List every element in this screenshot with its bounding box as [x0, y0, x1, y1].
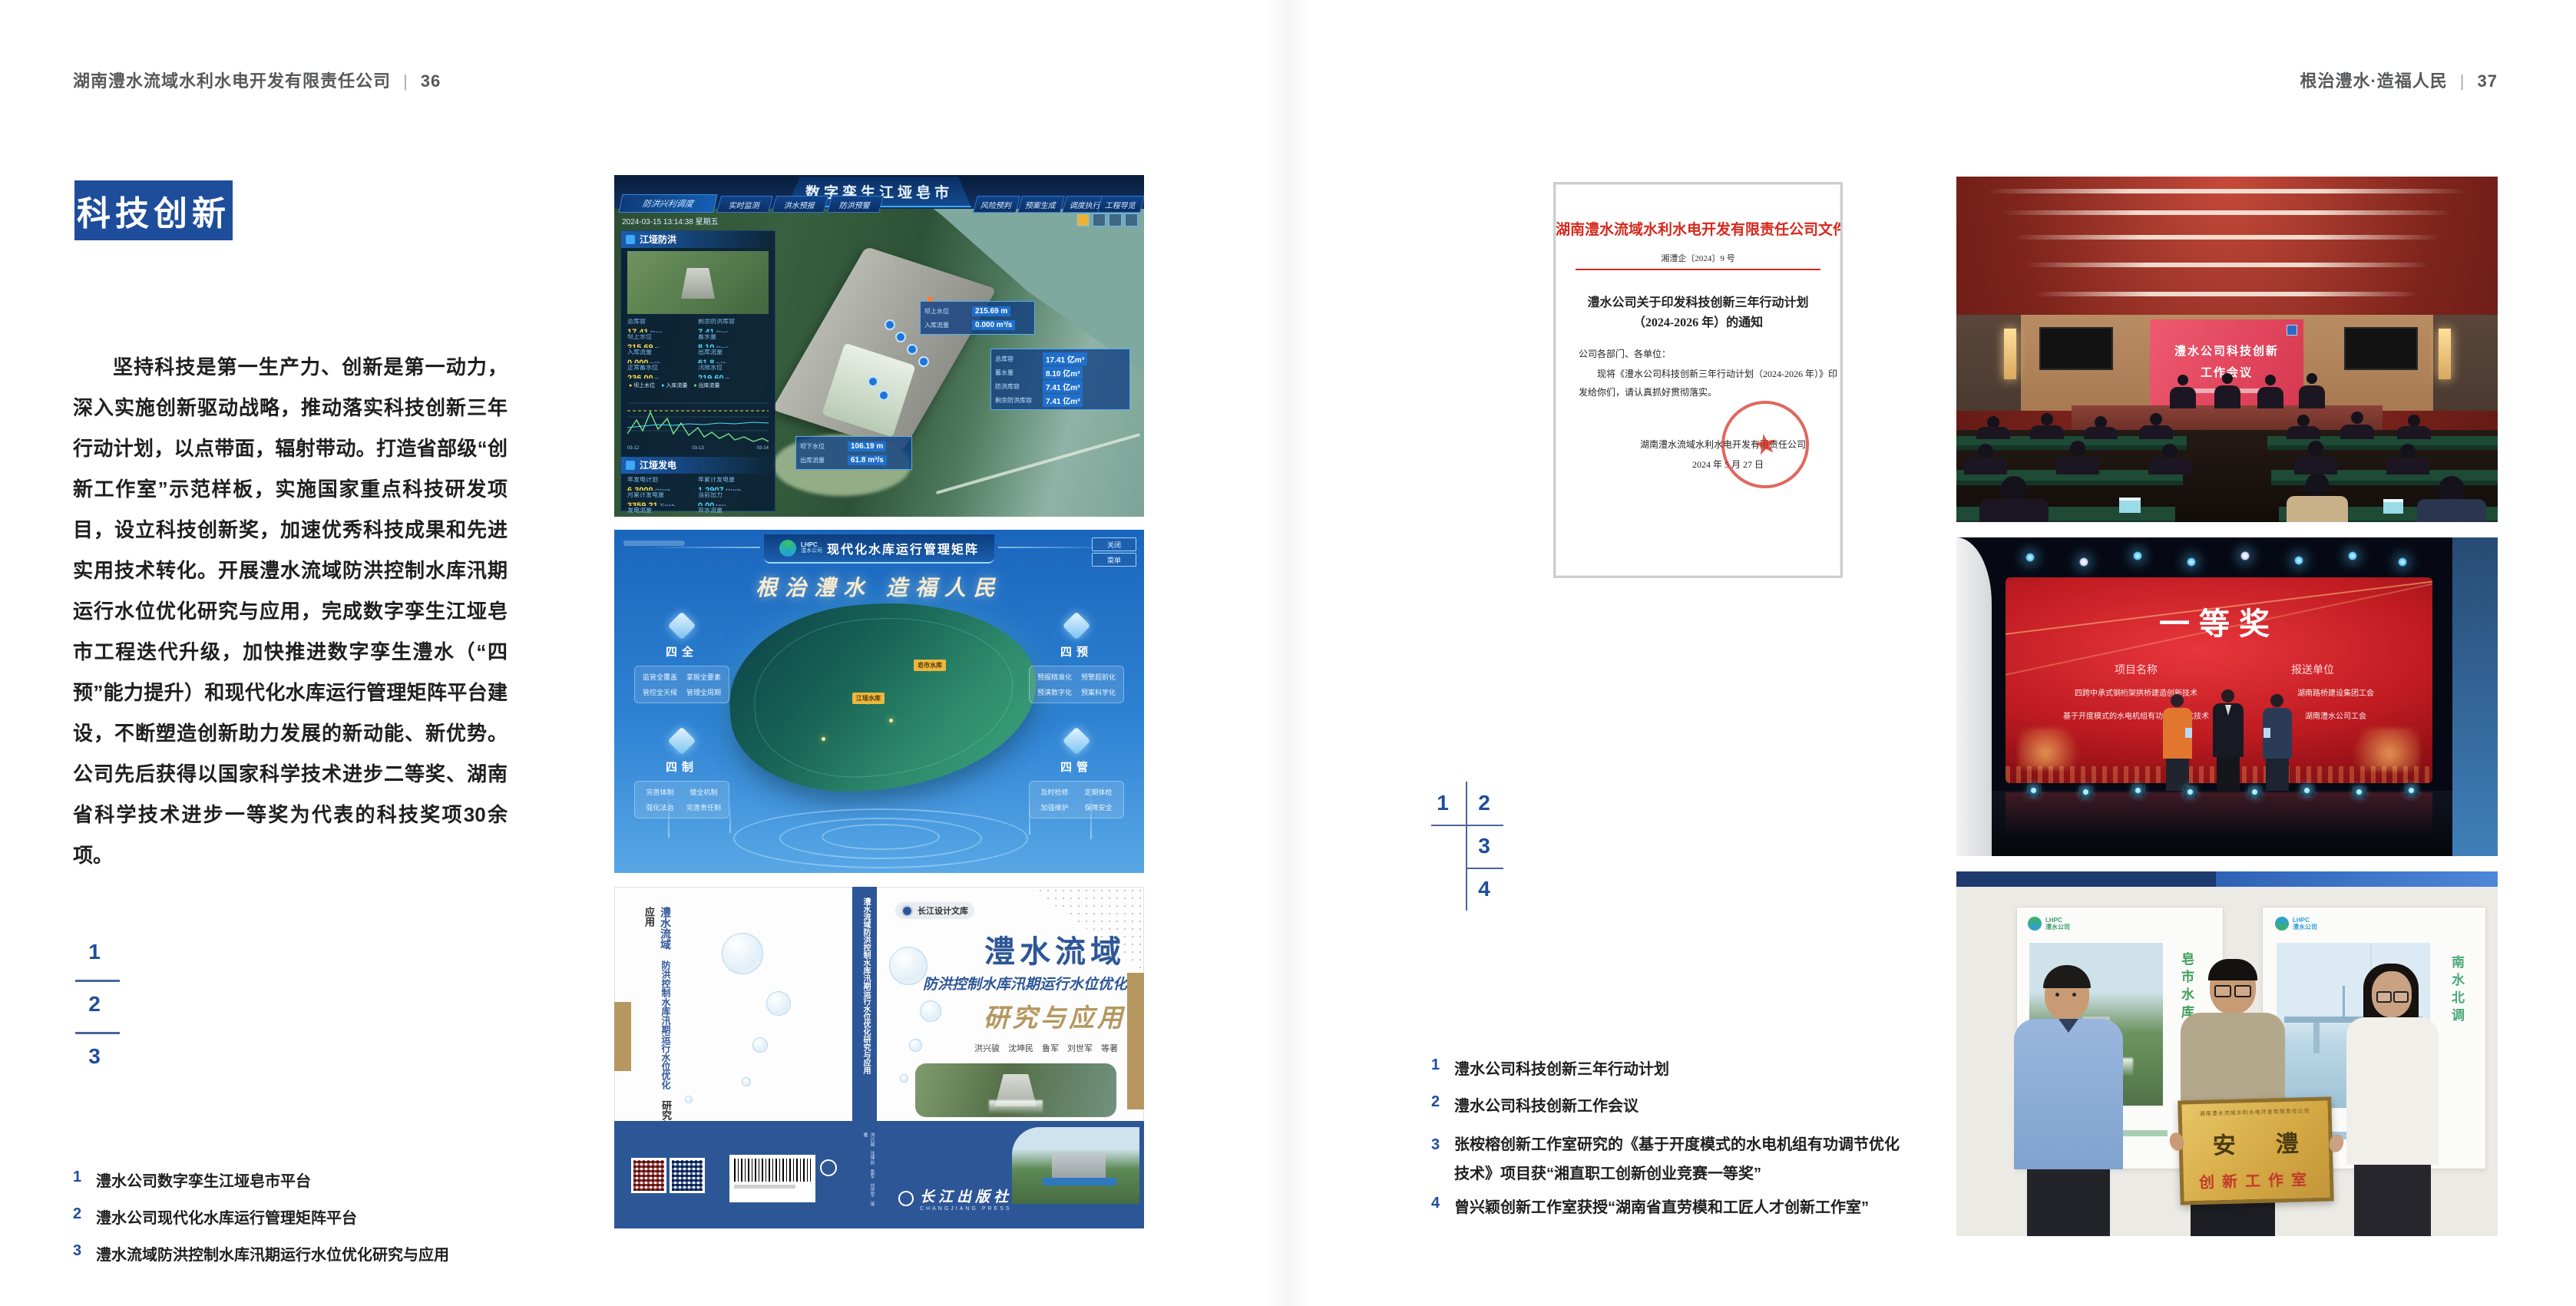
legend-item: ● 坝上水位	[629, 382, 655, 389]
stage-glow	[2018, 728, 2087, 769]
panel-items: 及时检修定期体检 加强维护保障安全	[1029, 781, 1124, 818]
award-project-2: 基于开度模式的水电机组有功调节优化技术	[2029, 709, 2244, 721]
gate-marker[interactable]	[907, 344, 918, 355]
floor-reflection	[2006, 792, 2432, 835]
page-number-37: 37	[2478, 71, 2498, 91]
figure-workshop-photo: LHPC澧水公司 皂市水库 LHPC澧水公司 南水北调	[1956, 871, 2498, 1236]
poster-logo: LHPC澧水公司	[2028, 917, 2070, 931]
band-photo-building	[1043, 1178, 1116, 1185]
presenter-suit	[2212, 689, 2244, 794]
spine-title: 澧水流域防洪控制水库汛期运行水位优化研究与应用	[860, 898, 871, 1128]
stat: 出库流量61.8m³/s	[698, 349, 769, 363]
header-divider: |	[391, 71, 421, 91]
caption-text: 澧水公司科技创新工作会议	[1454, 1093, 1639, 1116]
changjiang-design-logo	[901, 905, 913, 917]
caption-number: 2	[1431, 1093, 1454, 1111]
tab-flood-forecast[interactable]: 洪水预报	[772, 196, 828, 213]
figure-matrix-platform: LHPC 澧水公司 现代化水库运行管理矩阵 关闭 菜单 根治澧水 造福人民 皂市…	[614, 530, 1144, 873]
audience-silhouette	[1964, 444, 2007, 474]
tissue-box	[2119, 498, 2141, 513]
company-name: 湖南澧水流域水利水电开发有限责任公司	[73, 71, 391, 91]
light-pillar	[668, 795, 670, 838]
layers-icon[interactable]	[1093, 213, 1106, 226]
audience-silhouette	[2139, 413, 2173, 439]
dais-person	[2299, 373, 2325, 408]
legend-item: ● 入库流量	[661, 382, 687, 389]
trophy	[2264, 728, 2270, 738]
matrix-datetime-bar	[623, 541, 685, 546]
back-cover-title: 澧水流域 防洪控制水库汛期运行水位优化 研究与应用	[640, 907, 674, 1137]
right-caption-1: 1 澧水公司科技创新三年行动计划	[1431, 1056, 1907, 1079]
ceiling-light	[1987, 189, 2467, 193]
index-grid-vline	[1466, 782, 1467, 911]
tab-realtime-monitor[interactable]: 实时监测	[716, 196, 773, 213]
callout-row: 总库容17.41 亿m³	[995, 352, 1126, 365]
audience-silhouette	[2056, 441, 2099, 474]
polo-shirt	[2014, 1019, 2123, 1169]
water-bubble	[685, 1096, 693, 1103]
figure-book-cover: 澧水流域 防洪控制水库汛期运行水位优化 研究与应用 澧水流域防洪控制水库汛期运行…	[614, 887, 1144, 1228]
back-cover-band	[614, 1121, 852, 1228]
qr-code	[631, 1158, 666, 1193]
front-tan-bar	[1127, 973, 1144, 1109]
chart-x-ticks: 03-1203-1303-14	[627, 446, 769, 451]
maintenance-icon	[1063, 727, 1091, 755]
caption-text: 澧水公司科技创新三年行动计划	[1454, 1056, 1669, 1079]
basin-map: 皂市水库 江垭水库	[729, 603, 1037, 789]
figure-digital-twin-dashboard: 数字孪生江垭皂市 防洪兴利调度 实时监测 洪水预报 防洪预警 风险预判 预案生成…	[614, 175, 1144, 517]
top-banner-left	[1956, 871, 2216, 887]
book-title-sub: 防洪控制水库汛期运行水位优化	[906, 973, 1127, 994]
right-index-2: 2	[1471, 791, 1497, 815]
water-level-chart	[627, 389, 769, 446]
audience-silhouette	[2397, 415, 2431, 439]
tab-risk[interactable]: 风险预判	[973, 196, 1020, 213]
stat: 发电流量0.00m³/s	[627, 508, 698, 517]
figure-meeting-photo: 澧水公司科技创新 工作会议	[1956, 177, 2498, 522]
book-spine: 澧水流域防洪控制水库汛期运行水位优化研究与应用 洪兴骏 沈坤民 鲁军 刘世军 等…	[852, 887, 877, 1228]
glasses	[2376, 991, 2392, 1003]
page-number-36: 36	[421, 71, 441, 91]
callout-upstream: 坝上水位215.69 m 入库流量0.000 m³/s	[920, 301, 1035, 335]
award-col2-header: 报送单位	[2236, 662, 2389, 677]
doc-salutation: 公司各部门、各单位：	[1579, 347, 1671, 360]
locate-icon[interactable]	[1109, 213, 1122, 226]
lhpc-logo-icon	[779, 540, 796, 557]
panel-name: 四制	[634, 759, 729, 775]
right-caption-3: 3 张桉榕创新工作室研究的《基于开度模式的水电机组有功调节优化技术》项目获“湘直…	[1431, 1130, 1907, 1189]
tab-flood-warning[interactable]: 防洪预警	[827, 196, 884, 213]
caption-text: 澧水公司现代化水库运行管理矩阵平台	[96, 1205, 357, 1228]
audience-silhouette	[2287, 415, 2320, 439]
access-road	[936, 433, 1140, 494]
bridge-pier	[2313, 1023, 2320, 1053]
series-name: 长江设计文库	[918, 904, 968, 917]
right-caption-4: 4 曾兴颖创新工作室获授“湖南省直劳模和工匠人才创新工作室”	[1431, 1195, 1923, 1217]
water-bubble	[909, 1039, 922, 1052]
flood-stats: 总库容17.41亿m³ 剩余防洪库容7.41亿m³ 坝上水位215.69m 蓄水…	[627, 319, 769, 379]
stat: 年累计发电量1.2907亿kWh	[698, 477, 769, 491]
panel-items: 监管全覆盖掌握全要素 管控全天候管理全周期	[634, 666, 729, 703]
wall-lamp-right	[2439, 329, 2451, 379]
caption-number: 4	[1431, 1195, 1454, 1212]
audience-silhouette	[2148, 444, 2191, 474]
wall-lamp-left	[2004, 329, 2016, 379]
poster-logo: LHPC澧水公司	[2275, 917, 2317, 931]
stat: 弃水流量0.00m³/s	[698, 508, 769, 517]
water-bubble	[722, 933, 763, 974]
stat: 剩余防洪库容7.41亿m³	[698, 319, 769, 332]
doc-body-line2: 发给你们，请认真抓好贯彻落实。	[1579, 385, 1717, 398]
gate-marker[interactable]	[918, 356, 929, 367]
qr-code	[670, 1158, 705, 1193]
spread-gutter	[1263, 0, 1314, 1306]
panel-items: 完善体制健全机制 强化法治完善责任制	[634, 781, 729, 818]
chart-legend: ● 坝上水位 ● 入库流量 ● 出库流量	[629, 382, 720, 389]
header-divider-right: |	[2448, 71, 2478, 91]
institution-icon	[668, 727, 696, 755]
panel-siquan: 四全 监管全覆盖掌握全要素 管控全天候管理全周期	[634, 616, 729, 703]
series-brand: 长江设计文库	[895, 902, 974, 919]
audience-silhouette	[1979, 476, 2049, 522]
left-index-3: 3	[81, 1044, 107, 1069]
lhpc-logo-icon	[2275, 917, 2289, 931]
matrix-header: LHPC 澧水公司 现代化水库运行管理矩阵	[764, 534, 994, 564]
right-caption-2: 2 澧水公司科技创新工作会议	[1431, 1093, 1907, 1116]
dam-thumbnail	[627, 251, 769, 314]
index-grid-hline	[1466, 868, 1503, 869]
dashboard-timestamp: 2024-03-15 13:14:38 星期五	[622, 215, 719, 226]
dashboard-toolbar	[1073, 213, 1138, 226]
stat: 年发电计划6.3000亿kWh	[627, 477, 698, 491]
caption-text: 张桉榕创新工作室研究的《基于开度模式的水电机组有功调节优化技术》项目获“湘直职工…	[1454, 1130, 1903, 1189]
photo-spray	[989, 1100, 1043, 1114]
caption-text: 澧水流域防洪控制水库汛期运行水位优化研究与应用	[96, 1242, 449, 1265]
band-photo-dam	[1052, 1153, 1106, 1179]
index-rule	[75, 980, 120, 982]
callout-reservoir: 总库容17.41 亿m³ 蓄水量8.10 亿m³ 防洪库容7.41 亿m³ 剩余…	[990, 349, 1130, 410]
doc-red-rule	[1576, 269, 1820, 270]
glasses	[2234, 985, 2251, 997]
plaque-name: 安澧	[2182, 1124, 2329, 1162]
callout-row: 蓄水量8.10 亿m³	[995, 365, 1126, 379]
dais-person	[2214, 373, 2240, 408]
stat: 入库流量0.000m³/s	[627, 349, 698, 363]
stat: 坝上水位215.69m	[627, 334, 698, 348]
section-badge: 科技创新	[74, 180, 233, 240]
tissue-box	[2383, 499, 2403, 514]
screen-logo	[2287, 325, 2297, 336]
plaque-org: 湖南澧水流域水利水电开发有限责任公司	[2182, 1107, 2328, 1119]
glasses	[2393, 991, 2409, 1003]
dais-person	[2257, 375, 2283, 408]
figure-official-document: 湖南澧水流域水利水电开发有限责任公司文件 湘澧企〔2024〕9 号 澧水公司关于…	[1553, 182, 1843, 578]
stage-side-panel-left	[1956, 537, 1992, 856]
worker-marker	[928, 296, 933, 302]
poster-title-vertical: 南水北调	[2447, 955, 2466, 1070]
header-wing	[645, 547, 760, 548]
tab-project-tour[interactable]: 工程导览	[1097, 196, 1144, 213]
light-pillar	[729, 802, 731, 833]
panel-siyu: 四预 预报精准化预警超前化 预演数字化预案科学化	[1029, 616, 1124, 703]
left-caption-2: 2 澧水公司现代化水库运行管理矩阵平台	[73, 1205, 564, 1228]
plaque-subtitle: 创新工作室	[2184, 1167, 2330, 1193]
audience-silhouette	[2417, 476, 2486, 522]
ceiling-light	[2014, 235, 2440, 240]
intro-paragraph: 坚持科技是第一生产力、创新是第一动力，深入实施创新驱动战略，推动落实科技创新三年…	[73, 347, 508, 876]
gate-marker[interactable]	[878, 390, 889, 401]
trousers	[2027, 1169, 2110, 1236]
caption-text: 曾兴颖创新工作室获授“湖南省直劳模和工匠人才创新工作室”	[1454, 1195, 1869, 1217]
lhpc-logo-text: LHPC 澧水公司	[801, 542, 822, 554]
cover-dam-photo	[915, 1063, 1116, 1117]
audience-silhouette	[1976, 416, 2010, 439]
stat: 月累计发电量3359.21万kWh	[627, 492, 698, 506]
nav-active-label: 防洪兴利调度	[618, 194, 717, 213]
top-banner-right	[2216, 871, 2498, 887]
award-col1-header: 项目名称	[2059, 662, 2213, 677]
publisher-block: 长江出版社 CHANGJIANG PRESS	[898, 1185, 1012, 1212]
doc-title-line1: 澧水公司关于印发科技创新三年行动计划	[1556, 292, 1840, 310]
stage-glow	[2343, 728, 2420, 771]
gate-marker[interactable]	[885, 319, 895, 330]
stat: 汛限水位219.60m	[698, 365, 769, 379]
glasses	[2214, 985, 2231, 997]
audience-silhouette	[2030, 413, 2064, 439]
ceiling-light	[2025, 263, 2429, 267]
publisher-logo	[898, 1191, 914, 1206]
forecast-icon	[1063, 612, 1091, 640]
lhpc-logo-icon	[2028, 917, 2042, 931]
thumb-dam	[681, 268, 715, 299]
audience-silhouette	[2340, 412, 2374, 439]
ceiling-light	[2035, 292, 2419, 296]
front-cover-band: 长江出版社 CHANGJIANG PRESS	[877, 1121, 1144, 1228]
audience-silhouette	[2386, 444, 2429, 474]
band-photo	[1012, 1127, 1139, 1204]
light-pillar	[1090, 792, 1092, 839]
panel-name: 四全	[634, 643, 729, 660]
doc-letterhead: 湖南澧水流域水利水电开发有限责任公司文件	[1556, 218, 1840, 239]
motto: 根治澧水·造福人民	[2300, 71, 2447, 91]
user-icon[interactable]	[1076, 213, 1090, 226]
back-tan-block	[614, 1002, 631, 1071]
water-bubble	[766, 991, 791, 1016]
callout-downstream: 坝下水位106.19 m 出库流量61.8 m³/s	[795, 436, 912, 470]
stat: 正常蓄水位236.00m	[627, 365, 698, 379]
audience-silhouette	[2294, 441, 2337, 474]
callout-row: 防洪库容7.41 亿m³	[995, 379, 1126, 393]
index-rule	[75, 1032, 120, 1034]
caption-text: 澧水公司数字孪生江垭皂市平台	[96, 1169, 311, 1191]
trousers	[2354, 1165, 2431, 1236]
barcode	[729, 1155, 815, 1202]
close-button[interactable]: 关闭	[1092, 537, 1136, 551]
seal-star-icon: ★	[1750, 427, 1780, 463]
right-index-3: 3	[1471, 834, 1497, 858]
menu-button[interactable]: 菜单	[1092, 553, 1136, 567]
flood-panel-title: 江垭防洪	[621, 231, 775, 248]
screen-title-line1: 澧水公司科技创新	[2150, 342, 2303, 359]
workshop-plaque: 湖南澧水流域水利水电开发有限责任公司 安澧 创新工作室	[2178, 1096, 2333, 1205]
power-stats: 年发电计划6.3000亿kWh 年累计发电量1.2907亿kWh 月累计发电量3…	[627, 477, 769, 517]
ceiling-light	[2002, 210, 2452, 215]
stat: 蓄水量8.10亿m³	[698, 334, 769, 348]
callout-row: 坝下水位106.19 m	[800, 439, 908, 453]
right-index-1: 1	[1430, 791, 1456, 815]
audience-silhouette	[2084, 416, 2118, 439]
alert-icon[interactable]	[1125, 213, 1138, 226]
panel-name: 四预	[1029, 643, 1124, 660]
left-index-1: 1	[81, 940, 107, 964]
doc-number: 湘澧企〔2024〕9 号	[1556, 252, 1840, 264]
matrix-title: 现代化水库运行管理矩阵	[827, 539, 979, 557]
panel-name: 四管	[1029, 759, 1124, 775]
gate-marker[interactable]	[868, 376, 878, 387]
power-panel-title: 江垭发电	[621, 457, 775, 474]
award-title: 一等奖	[2006, 599, 2432, 643]
publisher-emblem	[820, 1159, 837, 1176]
caption-number: 3	[73, 1242, 96, 1260]
flood-panel: 江垭防洪 总库容17.41亿m³ 剩余防洪库容7.41亿m³ 坝上水位215.6…	[620, 230, 775, 511]
left-caption-3: 3 澧水流域防洪控制水库汛期运行水位优化研究与应用	[73, 1242, 564, 1265]
trophy	[2185, 728, 2192, 738]
water-bubble	[752, 1037, 768, 1053]
water-bubble	[900, 1074, 908, 1083]
panel-sizhi: 四制 完善体制健全机制 强化法治完善责任制	[634, 731, 729, 818]
panel-items: 预报精准化预警超前化 预演数字化预案科学化	[1029, 666, 1124, 703]
callout-row: 出库流量61.8 m³/s	[800, 453, 908, 467]
left-index-2: 2	[81, 992, 107, 1017]
gate-marker[interactable]	[895, 332, 906, 342]
matrix-slogan: 根治澧水 造福人民	[614, 571, 1144, 602]
stat: 当前出力0.00MW	[698, 492, 769, 506]
stage-side-panel-right	[2452, 537, 2498, 856]
book-title-main: 澧水流域	[921, 927, 1126, 971]
magazine-spread: 湖南澧水流域水利水电开发有限责任公司|36 根治澧水·造福人民|37 科技创新 …	[0, 0, 2576, 1306]
marker-jiangya-reservoir[interactable]: 江垭水库	[852, 693, 885, 704]
award-project-1: 四跨中承式钢桁架拱桥建造创新技术	[2029, 686, 2244, 698]
hair	[2208, 959, 2257, 980]
book-title-tail: 研究与应用	[921, 997, 1126, 1034]
station-dot	[889, 719, 893, 722]
legend-item: ● 出库流量	[693, 382, 719, 389]
publisher-en: CHANGJIANG PRESS	[920, 1206, 1012, 1212]
dais-person	[2170, 375, 2196, 408]
doc-title-line2: （2024-2026 年）的通知	[1556, 312, 1840, 330]
wall-tv-left	[2039, 327, 2113, 370]
white-top	[2346, 1017, 2439, 1165]
left-caption-1: 1 澧水公司数字孪生江垭皂市平台	[73, 1169, 564, 1191]
winner-orange	[2162, 694, 2193, 794]
right-index-4: 4	[1471, 877, 1497, 901]
publisher-name: 长江出版社	[920, 1185, 1012, 1206]
callout-row: 坝上水位215.69 m	[924, 304, 1030, 318]
doc-body-line1: 现将《澧水公司科技创新三年行动计划（2024-2026 年）》印	[1597, 367, 1837, 380]
caption-number: 3	[1431, 1130, 1454, 1159]
person-right	[2344, 964, 2441, 1236]
header-right: 根治澧水·造福人民|37	[2300, 68, 2498, 92]
tab-plan[interactable]: 预案生成	[1017, 196, 1065, 213]
wall-tv-right	[2344, 327, 2418, 370]
marker-zaoshi-reservoir[interactable]: 皂市水库	[914, 660, 946, 671]
light-pillar	[1029, 798, 1030, 835]
index-grid-hline	[1431, 825, 1503, 826]
monitor-icon	[668, 612, 696, 640]
caption-number: 2	[73, 1205, 96, 1223]
header-left: 湖南澧水流域水利水电开发有限责任公司|36	[73, 68, 441, 92]
panel-siguan: 四管 及时检修定期体检 加强维护保障安全	[1029, 731, 1124, 818]
spine-authors: 洪兴骏 沈坤民 鲁军 刘世军 等著	[861, 1132, 875, 1209]
caption-number: 1	[1431, 1056, 1454, 1074]
person-left	[2014, 970, 2123, 1236]
audience-silhouette-tan-coat	[2287, 473, 2348, 522]
official-seal: ★	[1715, 394, 1816, 495]
winner-blue	[2262, 694, 2293, 794]
book-authors: 洪兴骏 沈坤民 鲁军 刘世军 等著	[921, 1042, 1118, 1054]
callout-row: 入库流量0.000 m³/s	[924, 318, 1030, 332]
stat: 总库容17.41亿m³	[627, 319, 698, 332]
callout-row: 剩余防洪库容7.41 亿m³	[995, 393, 1126, 407]
figure-award-stage-photo: 一等奖 项目名称 报送单位 四跨中承式钢桁架拱桥建造创新技术 基于开度模式的水电…	[1956, 537, 2498, 856]
water-bubble	[742, 1077, 751, 1086]
caption-number: 1	[73, 1169, 96, 1186]
ripple	[822, 824, 940, 850]
